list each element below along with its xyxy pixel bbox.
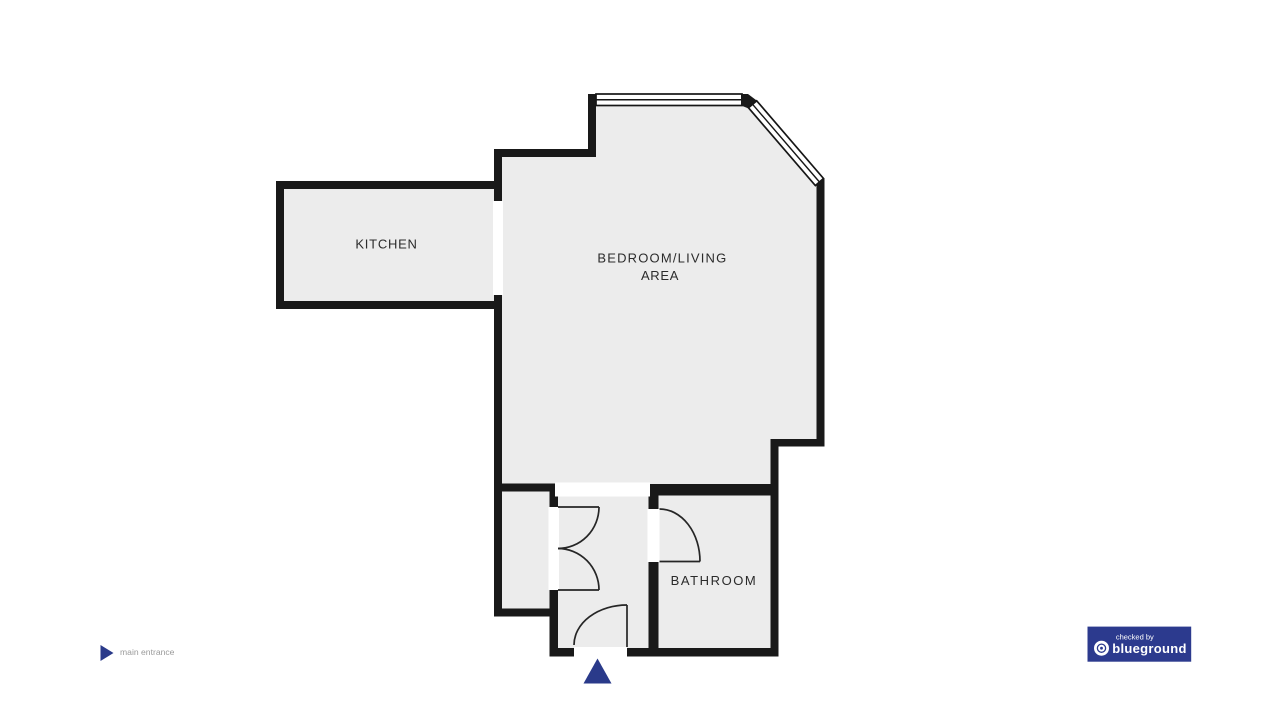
svg-text:AREA: AREA	[641, 268, 679, 283]
svg-text:blueground: blueground	[1112, 641, 1187, 656]
svg-text:BATHROOM: BATHROOM	[671, 573, 758, 588]
svg-text:main entrance: main entrance	[120, 647, 175, 657]
svg-text:BEDROOM/LIVING: BEDROOM/LIVING	[597, 251, 727, 266]
svg-text:KITCHEN: KITCHEN	[355, 237, 417, 252]
